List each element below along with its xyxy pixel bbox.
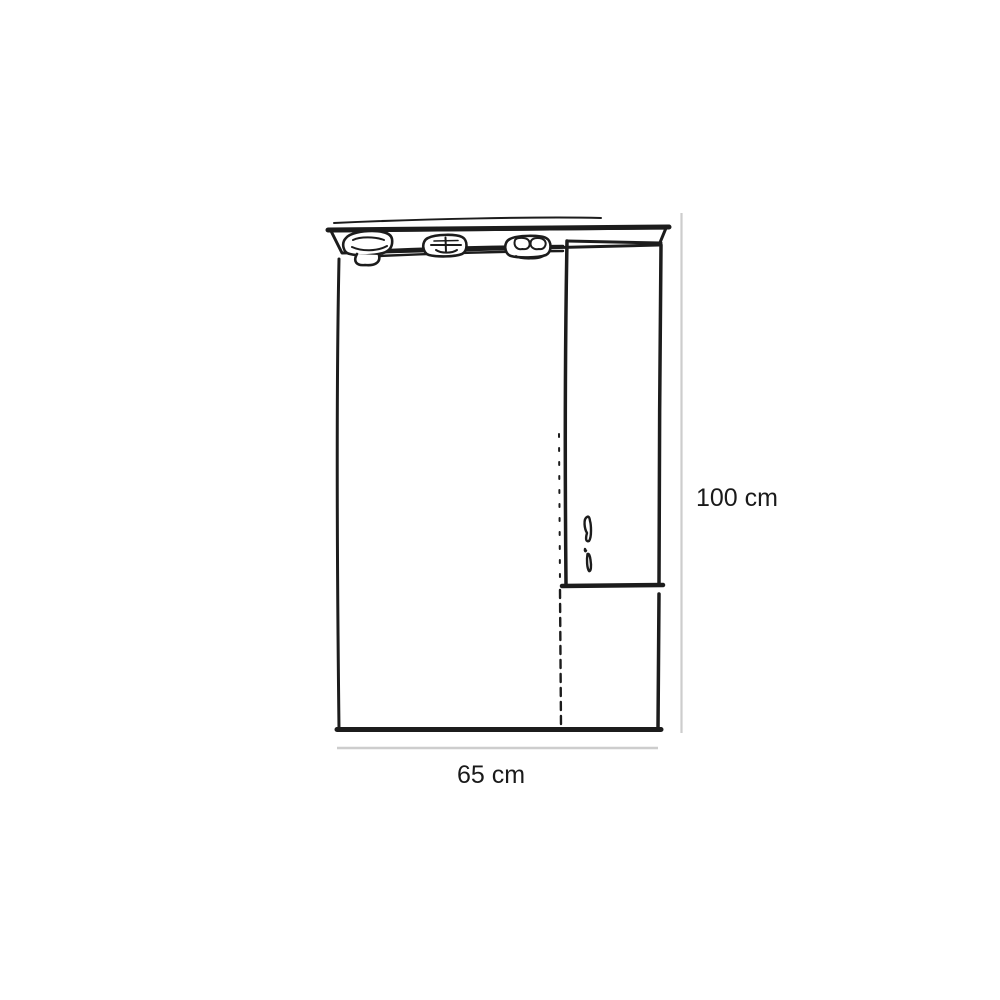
cabinet-linework bbox=[328, 218, 669, 730]
spotlight-middle-icon bbox=[423, 235, 466, 257]
mirror-edge-dashed-line bbox=[559, 434, 560, 584]
lower-open-shelf bbox=[658, 594, 659, 728]
product-dimension-diagram: 100 cm 65 cm bbox=[0, 0, 1000, 1000]
door-handle-icon bbox=[585, 517, 591, 571]
dimension-labels: 100 cm 65 cm bbox=[457, 484, 778, 789]
width-dimension-label: 65 cm bbox=[457, 761, 525, 789]
spotlight-right-icon bbox=[505, 236, 550, 259]
mirror-edge-dashed-line-lower bbox=[560, 590, 561, 727]
height-dimension-label: 100 cm bbox=[696, 484, 778, 512]
mirror-cabinet-drawing: 100 cm 65 cm bbox=[0, 0, 1000, 1000]
mirror-panel bbox=[337, 259, 661, 730]
spotlight-left-icon bbox=[343, 231, 392, 265]
canopy-back-edge-line bbox=[334, 218, 601, 223]
side-cabinet-door bbox=[562, 241, 663, 586]
dimension-lines bbox=[337, 213, 682, 748]
